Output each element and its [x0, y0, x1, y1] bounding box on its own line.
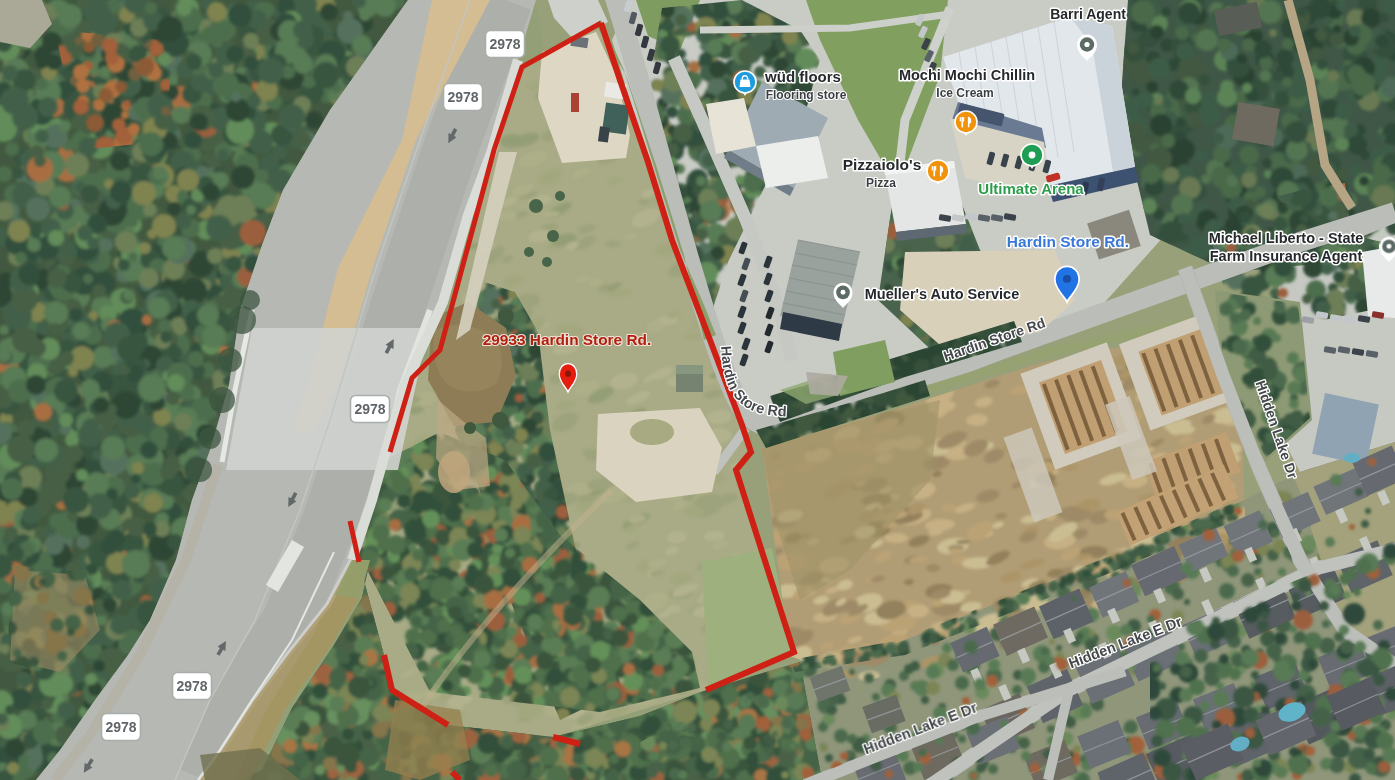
svg-text:Hardin Store Rd.: Hardin Store Rd. [1007, 233, 1129, 250]
svg-text:wüd floors: wüd floors [764, 68, 841, 85]
svg-text:2978: 2978 [176, 678, 207, 694]
svg-text:2978: 2978 [354, 401, 385, 417]
svg-text:Pizzaiolo's: Pizzaiolo's [843, 156, 922, 173]
svg-text:Pizza: Pizza [866, 176, 896, 190]
svg-text:2978: 2978 [105, 719, 136, 735]
svg-text:Farm Insurance Agent: Farm Insurance Agent [1210, 248, 1363, 264]
svg-text:Ice Cream: Ice Cream [936, 86, 993, 100]
svg-text:Barri Agent: Barri Agent [1050, 6, 1126, 22]
svg-text:2978: 2978 [489, 36, 520, 52]
svg-text:Mochi Mochi Chillin: Mochi Mochi Chillin [899, 67, 1035, 83]
svg-text:Mueller's Auto Service: Mueller's Auto Service [865, 286, 1019, 302]
svg-text:Ultimate Arena: Ultimate Arena [978, 180, 1084, 197]
svg-text:29933 Hardin Store Rd.: 29933 Hardin Store Rd. [483, 331, 652, 348]
svg-text:Michael Liberto - State: Michael Liberto - State [1209, 230, 1364, 246]
svg-text:Flooring store: Flooring store [766, 88, 847, 102]
svg-text:2978: 2978 [447, 89, 478, 105]
